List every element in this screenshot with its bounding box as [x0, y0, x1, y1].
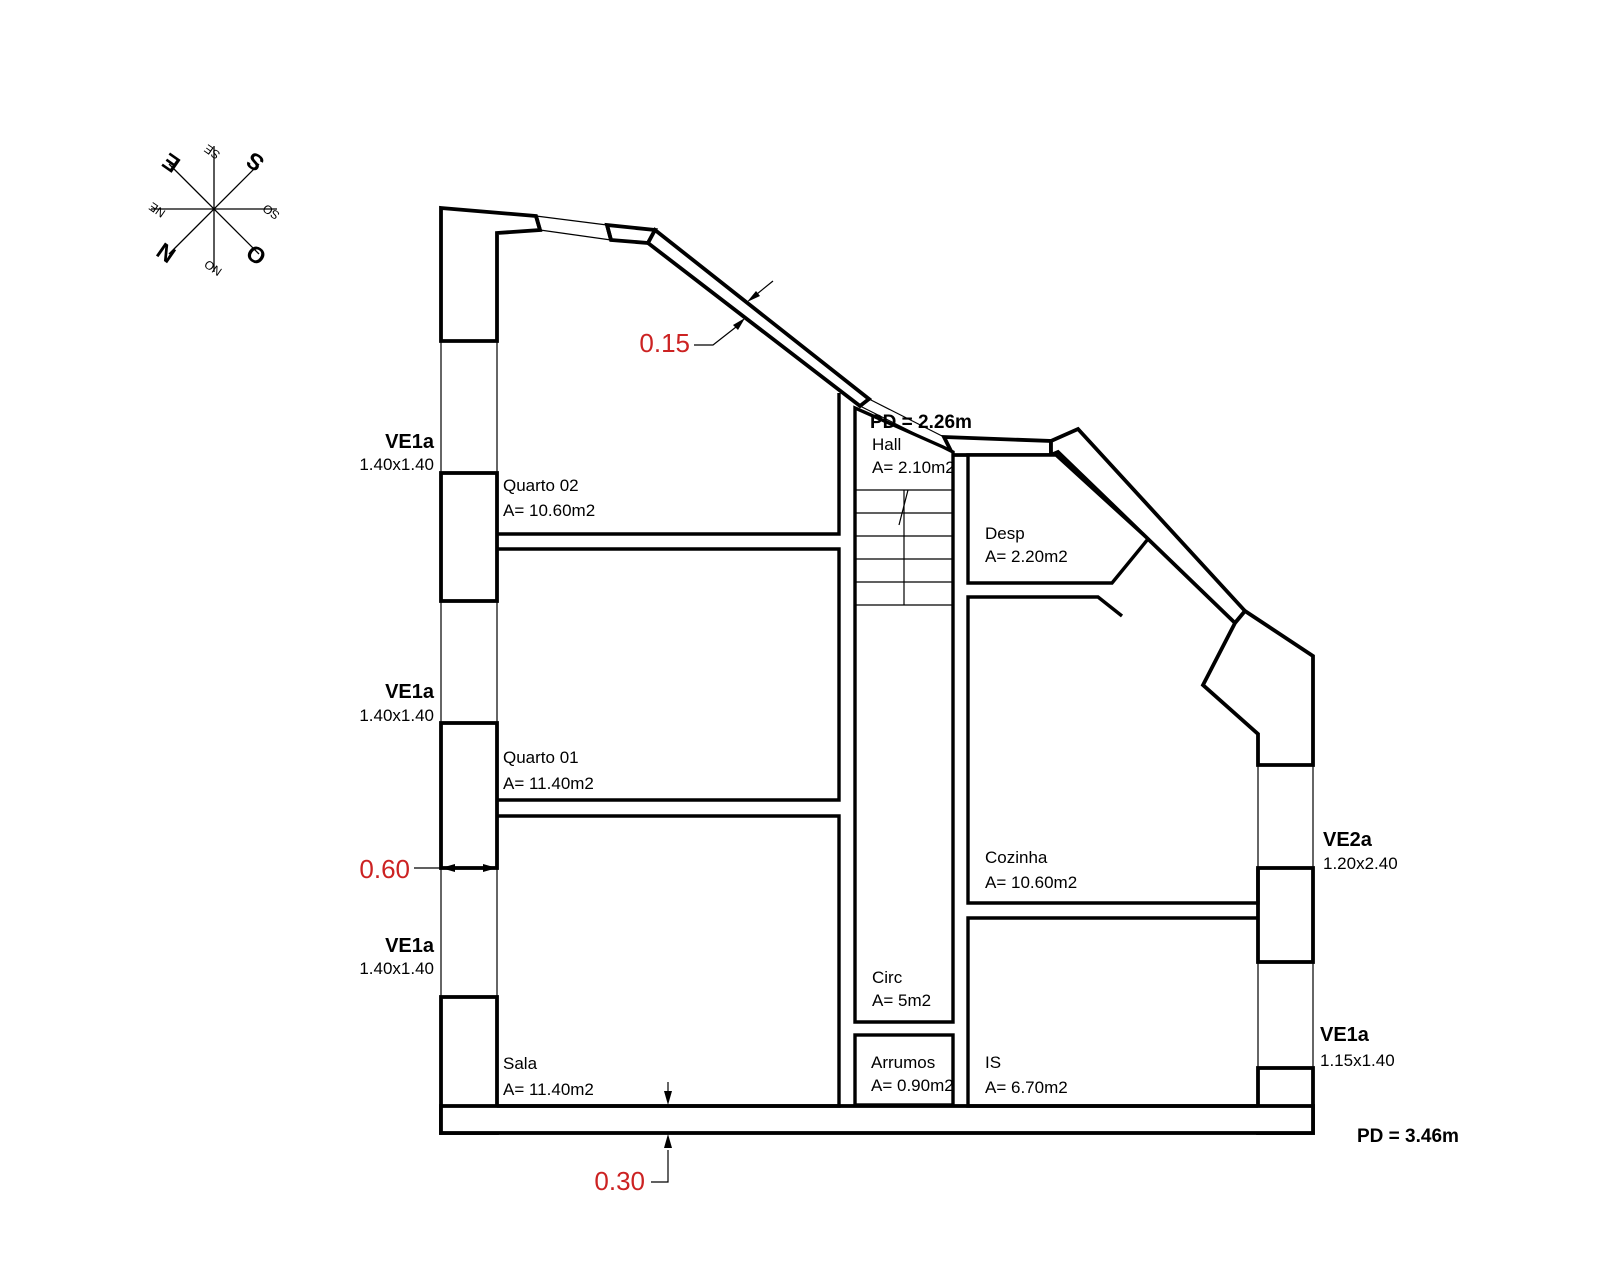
wall-diagonal-upper — [648, 230, 869, 406]
compass-east: E — [157, 148, 184, 178]
dim-bottom-wall-text: 0.30 — [594, 1166, 645, 1196]
dimension-0-30: 0.30 — [594, 1082, 672, 1196]
cozinha-area: A= 10.60m2 — [985, 873, 1077, 892]
win-left1-code: VE1a — [385, 431, 435, 453]
win-left1-size: 1.40x1.40 — [359, 455, 434, 474]
win-right-ve1a-code: VE1a — [1320, 1024, 1370, 1046]
label-window-right-ve1a: VE1a 1.15x1.40 — [1320, 1024, 1395, 1070]
win-left3-code: VE1a — [385, 935, 435, 957]
is-area: A= 6.70m2 — [985, 1078, 1068, 1097]
quarto01-name: Quarto 01 — [503, 748, 579, 767]
floor-plan-page: E S N O SE NE SO NO — [0, 0, 1600, 1280]
win-left3-size: 1.40x1.40 — [359, 959, 434, 978]
compass-south: S — [241, 147, 268, 177]
quarto02-name: Quarto 02 — [503, 476, 579, 495]
label-is: IS A= 6.70m2 — [985, 1053, 1068, 1097]
sala-name: Sala — [503, 1054, 538, 1073]
arrumos-area: A= 0.90m2 — [871, 1076, 954, 1095]
hall-name: Hall — [872, 435, 901, 454]
sala-area: A= 11.40m2 — [503, 1080, 594, 1099]
win-left2-size: 1.40x1.40 — [359, 706, 434, 725]
label-window-left2: VE1a 1.40x1.40 — [359, 681, 435, 725]
compass-ne: NE — [146, 199, 168, 220]
wall-right-segment-1 — [1258, 868, 1313, 962]
room-sala-outline — [497, 816, 839, 1106]
wall-left-segment-2 — [441, 723, 497, 868]
wall-hall-desp-band — [944, 437, 1051, 455]
floor-plan-drawing: E S N O SE NE SO NO — [0, 0, 1600, 1280]
label-window-ve2a: VE2a 1.20x2.40 — [1323, 829, 1398, 873]
label-window-left1: VE1a 1.40x1.40 — [359, 431, 435, 474]
label-cozinha: Cozinha A= 10.60m2 — [985, 848, 1077, 892]
circ-name: Circ — [872, 968, 903, 987]
label-sala: Sala A= 11.40m2 — [503, 1054, 594, 1099]
wall-left-segment-1 — [441, 473, 497, 601]
label-window-left3: VE1a 1.40x1.40 — [359, 935, 435, 978]
label-quarto01: Quarto 01 A= 11.40m2 — [503, 748, 594, 793]
desp-area: A= 2.20m2 — [985, 547, 1068, 566]
win-right-ve1a-size: 1.15x1.40 — [1320, 1051, 1395, 1070]
ceiling-height-hall: PD = 2.26m — [870, 412, 972, 433]
win-ve2a-size: 1.20x2.40 — [1323, 854, 1398, 873]
dim-arrow-down — [664, 1091, 672, 1105]
is-name: IS — [985, 1053, 1001, 1072]
label-quarto02: Quarto 02 A= 10.60m2 — [503, 476, 595, 520]
compass-west: O — [241, 239, 271, 271]
wall-bottom — [441, 1106, 1313, 1133]
quarto01-area: A= 11.40m2 — [503, 774, 594, 793]
circ-area: A= 5m2 — [872, 991, 931, 1010]
compass-se: SE — [202, 142, 223, 163]
arrumos-name: Arrumos — [871, 1053, 935, 1072]
dim-arrow-up — [664, 1134, 672, 1148]
win-ve2a-code: VE2a — [1323, 829, 1373, 851]
label-arrumos: Arrumos A= 0.90m2 — [871, 1053, 954, 1095]
cozinha-name: Cozinha — [985, 848, 1048, 867]
ceiling-height-main: PD = 3.46m — [1357, 1126, 1459, 1147]
hall-area: A= 2.10m2 — [872, 458, 955, 477]
win-left2-code: VE1a — [385, 681, 435, 703]
compass-north: N — [152, 238, 181, 269]
dim-diagonal-wall-text: 0.15 — [639, 328, 690, 358]
desp-name: Desp — [985, 524, 1025, 543]
wall-right-corner-alcove — [1203, 611, 1313, 765]
wall-top-left-corner — [441, 208, 540, 341]
compass-no: NO — [202, 257, 225, 279]
quarto02-area: A= 10.60m2 — [503, 501, 595, 520]
dim-left-wall-text: 0.60 — [359, 854, 410, 884]
compass-so: SO — [260, 201, 282, 222]
